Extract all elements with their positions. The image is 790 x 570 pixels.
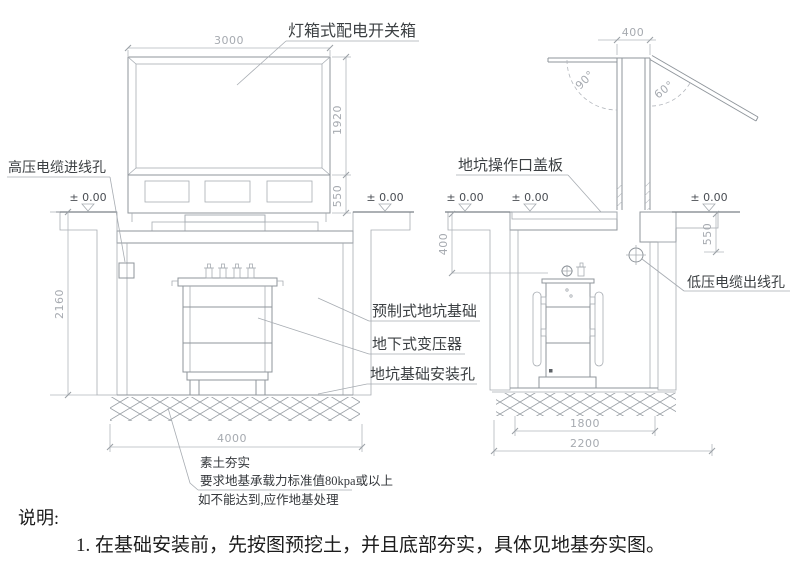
label-switch-box: 灯箱式配电开关箱 (237, 22, 419, 85)
label-cover-plate-text: 地坑操作口盖板 (458, 156, 563, 174)
label-precast-pit-text: 预制式地坑基础 (372, 303, 477, 320)
hv-cable-entry-symbol (119, 263, 134, 278)
label-hv-cable-text: 高压电缆进线孔 (8, 159, 106, 176)
shaft-footing-right (640, 212, 676, 242)
dim-shaft-width-400: 400 (598, 26, 656, 55)
notes-heading: 说明: (18, 508, 59, 528)
level-front-left-text: ± 0.00 (69, 191, 106, 204)
dim-depth-550: 550 (701, 211, 724, 255)
louver-base-panel (128, 175, 330, 213)
dim-4000-text: 4000 (217, 432, 247, 445)
ground-note-line3: 如不能达到,应作地基处理 (198, 492, 339, 507)
ground-note-line2: 要求地基承载力标准值80kpa或以上 (200, 473, 393, 488)
compacted-soil-front (110, 397, 360, 421)
earth-hatch-side-right (658, 212, 740, 390)
pit-structure-side (492, 230, 676, 392)
label-lv-cable-text: 低压电缆出线孔 (687, 275, 785, 291)
switch-box-cabinet (128, 57, 330, 175)
dim-outer-width-2200: 2200 (491, 420, 715, 456)
dim-400-left-text: 400 (437, 233, 450, 256)
dim-pit-width-4000: 4000 (107, 424, 365, 452)
level-marker-side-right: ± 0.00 (690, 191, 727, 211)
front-elevation-view: 3000 1920 550 (7, 22, 480, 507)
foundation-slab-front (117, 213, 353, 243)
level-front-right-text: ± 0.00 (366, 191, 403, 204)
level-side-mid-text: ± 0.00 (511, 191, 548, 204)
dim-1920-text: 1920 (331, 105, 344, 135)
level-marker-front-left: ± 0.00 (69, 191, 106, 211)
angle-60-text: 60° (652, 78, 677, 101)
dim-550-text: 550 (331, 185, 344, 208)
bushings (204, 264, 256, 278)
label-hv-cable-hole: 高压电缆进线孔 (7, 159, 125, 262)
level-marker-front-right: ± 0.00 (366, 191, 403, 211)
installation-drawing-page: 3000 1920 550 (0, 0, 790, 570)
label-switch-box-text: 灯箱式配电开关箱 (288, 22, 416, 40)
label-lv-cable-hole: 低压电缆出线孔 (642, 259, 790, 291)
side-elevation-view: 400 90° 60° (437, 26, 790, 456)
pit-cover-slab (510, 212, 617, 230)
dim-3000-text: 3000 (214, 34, 244, 47)
label-underground-transformer-text: 地下式变压器 (372, 336, 462, 353)
compacted-soil-side (496, 393, 676, 416)
label-pit-mount-hole-text: 地坑基础安装孔 (370, 366, 475, 383)
dim-depth-400: 400 (437, 211, 548, 276)
ground-note-line1: 素土夯实 (200, 455, 250, 470)
earth-hatch-side-left (445, 212, 510, 390)
notes-block: 说明: 1. 在基础安装前，先按图预挖土，并且底部夯实，具体见地基夯实图。 (18, 508, 665, 556)
level-marker-side-left: ± 0.00 (446, 191, 483, 211)
angle-90-text: 90° (573, 68, 597, 92)
level-side-right-text: ± 0.00 (690, 191, 727, 204)
transformer-front (172, 264, 283, 395)
dim-550-right-text: 550 (701, 223, 714, 246)
cover-lid-closed (548, 58, 617, 62)
label-precast-pit: 预制式地坑基础 (318, 298, 480, 321)
dim-2160-text: 2160 (53, 289, 66, 319)
lv-cable-hole-symbol (626, 245, 646, 265)
label-pit-mount-hole: 地坑基础安装孔 (318, 366, 477, 394)
dim-400-top-text: 400 (622, 26, 645, 39)
level-side-left-text: ± 0.00 (446, 191, 483, 204)
ground-notes: 素土夯实 要求地基承载力标准值80kpa或以上 如不能达到,应作地基处理 (168, 408, 393, 507)
dim-pit-depth-2160: 2160 (50, 209, 97, 398)
technical-drawing-canvas: 3000 1920 550 (0, 0, 790, 570)
notes-item1: 1. 在基础安装前，先按图预挖土，并且底部夯实，具体见地基夯实图。 (76, 534, 665, 556)
transformer-side (533, 263, 603, 388)
dim-1800-text: 1800 (570, 417, 600, 430)
dim-box-height-1920-550: 1920 550 (331, 54, 351, 216)
opening-angle-arcs: 90° 60° (567, 60, 690, 110)
level-marker-side-mid: ± 0.00 (511, 191, 548, 211)
dim-inner-width-1800: 1800 (512, 416, 658, 436)
dim-2200-text: 2200 (570, 437, 600, 450)
label-underground-transformer: 地下式变压器 (258, 318, 465, 354)
access-shaft (617, 58, 650, 210)
